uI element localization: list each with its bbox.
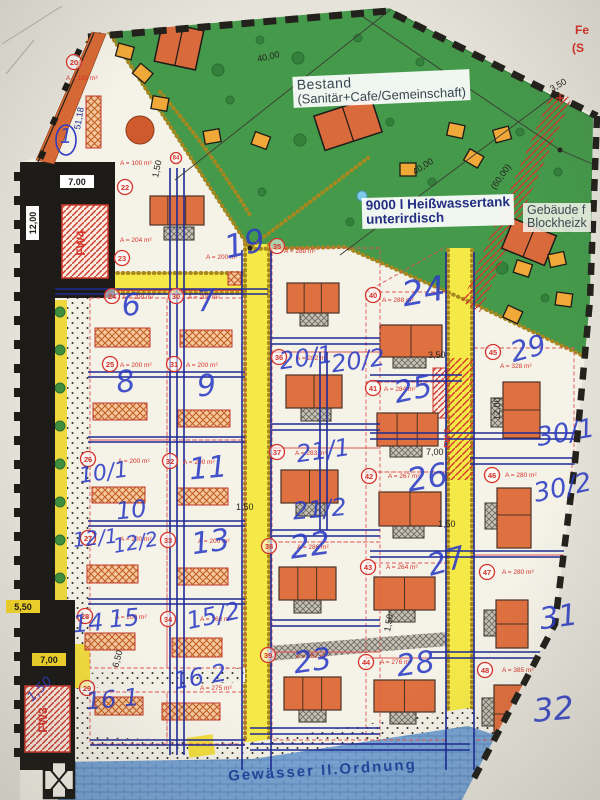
handwritten-number: 10 — [115, 494, 148, 525]
plot-marker-number: 48 — [481, 666, 489, 675]
area-label: A = 100 m² — [120, 160, 152, 167]
plot-marker-number: 47 — [483, 568, 491, 577]
boundary-tooth — [14, 700, 23, 709]
plot-marker-number: 39 — [264, 651, 272, 660]
boundary-tooth — [14, 436, 23, 445]
plot-marker-number: 38 — [265, 542, 273, 551]
handwritten-number: 28 — [394, 644, 437, 684]
handwritten-number: 15 — [108, 603, 141, 634]
handwritten-number: 32 — [531, 688, 575, 729]
plot-marker-33: 33 — [161, 533, 176, 548]
boundary-tooth — [14, 268, 23, 277]
handwritten-number: 21/2 — [292, 493, 348, 526]
dimension-box-text: 7,00 — [40, 655, 58, 665]
dimension-label: 12,00 — [492, 397, 502, 420]
plot-marker-number: 42 — [365, 472, 373, 481]
plot-marker-number: 44 — [362, 658, 371, 667]
plot-marker-31: 31 — [167, 357, 182, 372]
building-stoop — [390, 446, 422, 457]
site-plan-photo: A = 180 m²A = 100 m²A = 204 m²A = 200 m²… — [0, 0, 600, 800]
plot-marker-20: 20 — [67, 55, 82, 70]
plot-marker-45: 45 — [486, 345, 501, 360]
plot-marker-number: 41 — [369, 384, 377, 393]
plot-marker-number: 24 — [108, 292, 117, 301]
handwritten-number: 11 — [188, 449, 229, 487]
planned-footprint — [87, 565, 138, 583]
handwritten-text: 9 — [196, 368, 218, 405]
plot-marker-48: 48 — [478, 663, 493, 678]
handwritten-text: 24 — [399, 268, 449, 315]
plot-marker-38: 38 — [262, 539, 277, 554]
dimension-box: 12,00 — [26, 206, 39, 240]
dimension-label: 1,50 — [438, 519, 456, 529]
building — [284, 677, 341, 710]
plot-marker-number: 84 — [173, 156, 180, 162]
building-stoop — [482, 698, 494, 726]
boundary-tooth — [14, 748, 23, 757]
boundary-tooth — [14, 628, 23, 637]
plot-marker-number: 22 — [121, 183, 129, 192]
area-label: A = 280 m² — [502, 569, 534, 576]
planned-footprint — [86, 96, 101, 148]
plot-marker-46: 46 — [485, 468, 500, 483]
plot-marker-32: 32 — [163, 454, 178, 469]
handwritten-text: 22 — [287, 523, 333, 566]
boundary-tooth — [14, 196, 23, 205]
handwritten-text: 28 — [394, 644, 437, 684]
bush-icon — [55, 421, 65, 431]
culvert-symbol — [44, 762, 74, 798]
building-stoop — [294, 600, 321, 613]
area-label: A = 385 m² — [502, 667, 534, 674]
plot-marker-39: 39 — [261, 648, 276, 663]
paper-bottom-left — [0, 163, 14, 800]
handwritten-number: 7 — [196, 283, 218, 320]
fw6-hatch — [447, 358, 473, 480]
site-plan-canvas: A = 180 m²A = 100 m²A = 204 m²A = 200 m²… — [0, 0, 600, 800]
plot-marker-22: 22 — [118, 180, 133, 195]
handwritten-text: 7 — [196, 283, 218, 320]
plot-marker-number: 30 — [172, 292, 180, 301]
handwritten-text: 16 1 — [85, 683, 141, 716]
handwritten-text: 15 — [108, 603, 141, 634]
fw-label: FW3 — [36, 707, 50, 733]
survey-node — [558, 148, 563, 153]
dimension-label: 3,50 — [428, 350, 446, 360]
handwritten-text: 13 — [189, 522, 232, 562]
bush-icon — [55, 535, 65, 545]
boundary-tooth — [14, 460, 23, 469]
tree-icon — [346, 218, 354, 226]
hut-building — [548, 251, 566, 267]
handwritten-text: 21/2 — [292, 493, 348, 526]
boundary-tooth — [14, 220, 23, 229]
plot-marker-number: 33 — [164, 536, 172, 545]
handwritten-text: 11 — [188, 449, 229, 487]
tree-icon — [554, 168, 562, 176]
dimension-box: 5,50 — [6, 600, 40, 613]
handwritten-number: 24 — [399, 268, 449, 315]
label-gebaeude-line2: Blockheizk — [527, 217, 587, 230]
plot-marker-number: 37 — [273, 448, 281, 457]
boundary-tooth — [14, 364, 23, 373]
boundary-tooth — [14, 652, 23, 661]
boundary-tooth — [14, 532, 23, 541]
label-tank-line2: unterirdisch — [366, 209, 510, 227]
tree-icon — [292, 52, 304, 64]
handwritten-number: 26 — [404, 455, 451, 499]
boundary-tooth — [14, 676, 23, 685]
area-label: A = 204 m² — [120, 237, 152, 244]
edge-note-text: (S — [572, 41, 584, 55]
handwritten-number: 9 — [196, 368, 218, 405]
hut-building — [447, 122, 465, 138]
plot-marker-number: 20 — [70, 58, 78, 67]
label-heisswassertank: 9000 l Heißwassertank unterirdisch — [362, 194, 515, 229]
area-label: A = 264 m² — [386, 564, 418, 571]
tree-icon — [226, 96, 234, 104]
boundary-tooth — [14, 244, 23, 253]
building-stoop — [390, 712, 416, 724]
bush-icon — [55, 459, 65, 469]
building — [377, 413, 438, 446]
plot-marker-24: 24 — [105, 289, 120, 304]
plot-marker-40: 40 — [366, 288, 381, 303]
building-stoop — [393, 526, 424, 538]
boundary-tooth — [14, 316, 23, 325]
dimension-box-text: 7.00 — [68, 177, 86, 187]
planned-footprint — [172, 638, 222, 657]
plot-marker-number: 35 — [273, 242, 281, 251]
tree-icon — [258, 188, 266, 196]
planned-footprint — [93, 403, 147, 420]
building-stoop — [164, 227, 194, 240]
tree-icon — [541, 294, 549, 302]
tree-icon — [386, 118, 394, 126]
tree-circle-large — [126, 116, 154, 144]
road-b — [447, 248, 473, 772]
dimension-box: 7,00 — [32, 653, 66, 666]
dimension-label: 1,50 — [236, 502, 254, 512]
boundary-tooth — [14, 556, 23, 565]
plot-marker-number: 23 — [118, 254, 126, 263]
boundary-tooth — [14, 340, 23, 349]
building — [287, 283, 339, 313]
plot-marker-number: 32 — [166, 457, 174, 466]
building — [279, 567, 336, 600]
building-stoop — [485, 503, 497, 529]
tree-icon — [416, 58, 424, 66]
building-stoop — [484, 610, 496, 636]
hut-building — [151, 96, 169, 112]
building-stoop — [300, 313, 328, 326]
plot-marker-number: 40 — [369, 291, 377, 300]
planned-footprint — [178, 410, 230, 427]
boundary-tooth — [14, 484, 23, 493]
handwritten-number: 13 — [189, 522, 232, 562]
handwritten-text: 14 — [72, 608, 105, 639]
boundary-tooth — [14, 388, 23, 397]
plot-marker-41: 41 — [366, 381, 381, 396]
bush-icon — [55, 345, 65, 355]
boundary-tooth — [14, 292, 23, 301]
fw-label: FW 6 — [443, 428, 452, 448]
yellow-patch-2 — [187, 734, 216, 757]
tree-icon — [212, 64, 224, 76]
area-label: A = 288 m² — [284, 248, 316, 255]
tree-icon — [294, 134, 306, 146]
plot-marker-number: 43 — [364, 563, 372, 572]
handwritten-number: 16 1 — [85, 683, 141, 716]
bush-icon — [55, 573, 65, 583]
plot-marker-84: 84 — [171, 153, 182, 164]
plot-marker-number: 31 — [170, 360, 178, 369]
handwritten-number: 14 — [72, 608, 105, 639]
plot-marker-number: 45 — [489, 348, 497, 357]
handwritten-number: 23 — [291, 641, 334, 681]
plot-marker-35: 35 — [270, 239, 285, 254]
building — [497, 488, 531, 548]
area-label: A = 180 m² — [66, 75, 98, 82]
boundary-tooth — [14, 508, 23, 517]
bush-icon — [55, 383, 65, 393]
area-label: A = 280 m² — [505, 472, 537, 479]
plot-marker-44: 44 — [359, 655, 374, 670]
planned-footprint — [95, 328, 150, 347]
tree-icon — [256, 36, 264, 44]
plot-marker-37: 37 — [270, 445, 285, 460]
plot-marker-number: 46 — [488, 471, 496, 480]
building-stoop — [393, 357, 426, 368]
edge-note-text: Fe — [575, 23, 589, 37]
bush-icon — [55, 497, 65, 507]
plot-marker-23: 23 — [115, 251, 130, 266]
boundary-tooth — [14, 172, 23, 181]
plot-marker-42: 42 — [362, 469, 377, 484]
plot-marker-43: 43 — [361, 560, 376, 575]
hut-building — [555, 292, 573, 307]
plot-marker-30: 30 — [169, 289, 184, 304]
handwritten-text: 23 — [291, 641, 334, 681]
fw-label: FW4 — [74, 230, 88, 256]
planned-footprint — [180, 330, 232, 347]
bush-icon — [55, 307, 65, 317]
handwritten-text: 10 — [115, 494, 148, 525]
dimension-box-text: 12,00 — [28, 212, 38, 235]
handwritten-number: 22 — [287, 523, 333, 566]
building-stoop — [299, 710, 326, 722]
handwritten-text: 26 — [404, 455, 451, 499]
dimension-box: 7.00 — [60, 175, 94, 188]
boundary-tooth — [14, 412, 23, 421]
handwritten-text: 1 — [60, 124, 73, 148]
dimension-label: 7,00 — [426, 447, 444, 457]
label-gebaeude: Gebäude f Blockheizk — [523, 203, 591, 232]
hut-building — [203, 129, 221, 145]
planned-footprint — [228, 272, 241, 285]
handwritten-text: 32 — [531, 688, 575, 729]
boundary-tooth — [14, 724, 23, 733]
plot-marker-34: 34 — [161, 612, 176, 627]
handwritten-text: 31 — [537, 597, 580, 637]
plot-marker-47: 47 — [480, 565, 495, 580]
handwritten-number: 31 — [537, 597, 580, 637]
dimension-box-text: 5,50 — [14, 602, 32, 612]
boundary-tooth — [14, 580, 23, 589]
tree-icon — [516, 128, 524, 136]
plot-marker-number: 34 — [164, 615, 173, 624]
